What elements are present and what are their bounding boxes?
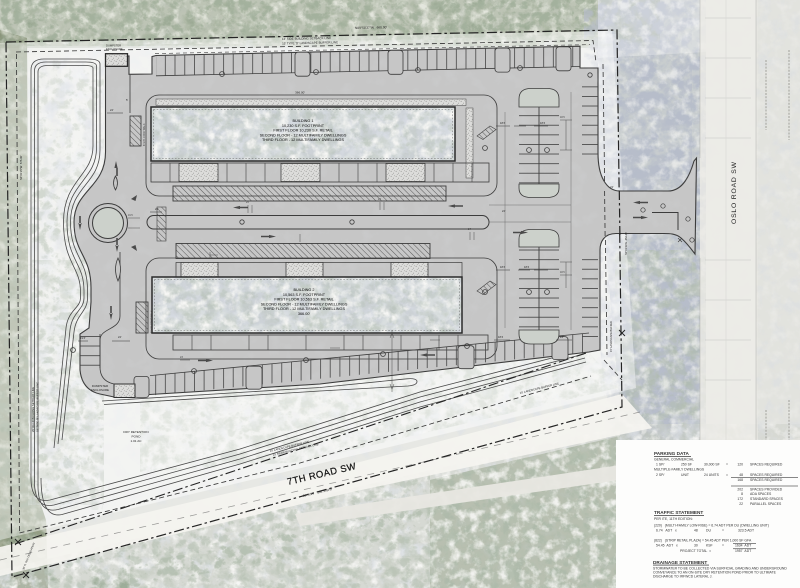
svg-text:(822) (STRIP RETAIL PLAZA) =: (822) (STRIP RETAIL PLAZA) = 54.45 ADT P… bbox=[654, 538, 752, 542]
svg-text:THIRD FLOOR - 12 MULTIFAMILY D: THIRD FLOOR - 12 MULTIFAMILY DWELLINGS bbox=[262, 138, 345, 142]
svg-text:FIRST FLOOR 10,563 S.F. RETAIL: FIRST FLOOR 10,563 S.F. RETAIL bbox=[274, 298, 333, 302]
svg-text:48: 48 bbox=[694, 528, 698, 532]
svg-text:6.74 ADT x: 6.74 ADT x bbox=[656, 528, 677, 532]
svg-text:STANDARD SPACES: STANDARD SPACES bbox=[750, 497, 784, 501]
svg-text:PROJECT TOTAL =: PROJECT TOTAL = bbox=[680, 549, 711, 553]
svg-text:18.5: 18.5 bbox=[524, 265, 530, 269]
svg-text:172: 172 bbox=[737, 497, 743, 501]
svg-text:24': 24' bbox=[560, 335, 564, 339]
svg-text:SECOND FLOOR - 12 MULTIFAMILY: SECOND FLOOR - 12 MULTIFAMILY DWELLINGS bbox=[260, 133, 347, 137]
svg-text:24': 24' bbox=[468, 228, 472, 231]
svg-text:24': 24' bbox=[502, 209, 506, 213]
svg-text:N89°58'37"W 660.00': N89°58'37"W 660.00' bbox=[355, 25, 387, 30]
svg-text:PARALLEL SPACES: PARALLEL SPACES bbox=[750, 502, 782, 506]
svg-text:8' M.B. CONC WALK: 8' M.B. CONC WALK bbox=[143, 123, 146, 146]
svg-text:25' REAR BUILDING SETBACK LINE: 25' REAR BUILDING SETBACK LINE bbox=[31, 387, 35, 432]
svg-text:ADA SPACES: ADA SPACES bbox=[750, 492, 772, 496]
svg-text:366.00': 366.00' bbox=[295, 91, 305, 95]
svg-text:POND: POND bbox=[132, 435, 142, 439]
svg-text:18.5: 18.5 bbox=[560, 116, 565, 119]
svg-text:SECOND FLOOR - 12 MULTIFAMILY: SECOND FLOOR - 12 MULTIFAMILY DWELLINGS bbox=[261, 302, 348, 306]
svg-text:THIRD FLOOR - 12 MULTIFAMILY D: THIRD FLOOR - 12 MULTIFAMILY DWELLINGS bbox=[263, 307, 346, 311]
svg-text:10,563 S.F. FOOTPRINT: 10,563 S.F. FOOTPRINT bbox=[283, 293, 326, 297]
svg-text:SPACES PROVIDED: SPACES PROVIDED bbox=[750, 487, 783, 491]
svg-text:15' TYPE 'B' LANDSCAPE BUFFER: 15' TYPE 'B' LANDSCAPE BUFFER LINE bbox=[36, 382, 40, 432]
svg-text:=: = bbox=[722, 528, 724, 532]
svg-text:19.5': 19.5' bbox=[80, 336, 86, 340]
svg-text:24': 24' bbox=[110, 108, 114, 112]
svg-text:16.5: 16.5 bbox=[128, 214, 133, 217]
svg-text:TRAFFIC STATEMENT: TRAFFIC STATEMENT bbox=[654, 510, 703, 515]
svg-text:=: = bbox=[726, 473, 728, 477]
svg-text:MULTIPLE-FAMILY DWELLINGS: MULTIPLE-FAMILY DWELLINGS bbox=[654, 468, 705, 472]
svg-text:DISCHARGE TO IRFWCD LATERAL J.: DISCHARGE TO IRFWCD LATERAL J. bbox=[653, 574, 712, 578]
svg-text:18.5: 18.5 bbox=[540, 121, 546, 125]
svg-text:1.01 AC: 1.01 AC bbox=[130, 439, 142, 443]
svg-text:=: = bbox=[726, 462, 728, 466]
svg-text:KSF: KSF bbox=[706, 544, 713, 548]
svg-text:S0°01'23"E 452.45': S0°01'23"E 452.45' bbox=[624, 231, 628, 255]
svg-text:22: 22 bbox=[739, 502, 743, 506]
svg-text:24': 24' bbox=[180, 356, 184, 359]
svg-text:OSLO ROAD SW: OSLO ROAD SW bbox=[731, 161, 738, 224]
svg-text:323.5 ADT: 323.5 ADT bbox=[738, 528, 754, 532]
svg-text:(220) (MULTI-FAMILY LOW-RISE: (220) (MULTI-FAMILY LOW-RISE) = 6.74 ADT… bbox=[654, 523, 769, 527]
svg-text:1957 ADT: 1957 ADT bbox=[735, 549, 751, 553]
svg-text:8' M.B. CONC WALK: 8' M.B. CONC WALK bbox=[151, 310, 154, 333]
svg-text:8: 8 bbox=[741, 492, 743, 496]
svg-text:PARKING DATA: PARKING DATA bbox=[654, 451, 690, 456]
svg-text:24': 24' bbox=[378, 198, 382, 201]
svg-text:250 SF: 250 SF bbox=[681, 462, 692, 466]
svg-text:24 UNITS: 24 UNITS bbox=[704, 473, 720, 477]
svg-text:24': 24' bbox=[155, 207, 159, 211]
svg-text:DRAINAGE STATEMENT: DRAINAGE STATEMENT bbox=[653, 560, 707, 565]
svg-text:366.00': 366.00' bbox=[298, 312, 311, 316]
svg-text:120: 120 bbox=[737, 462, 743, 466]
svg-text:UNIT: UNIT bbox=[681, 473, 689, 477]
svg-text:10,230 S.F. FOOTPRINT: 10,230 S.F. FOOTPRINT bbox=[282, 124, 325, 128]
svg-text:SPACES REQUIRED: SPACES REQUIRED bbox=[750, 478, 783, 482]
svg-text:=: = bbox=[722, 544, 724, 548]
svg-text:BUILDING 2: BUILDING 2 bbox=[293, 288, 314, 292]
svg-text:2 SP/: 2 SP/ bbox=[656, 473, 664, 477]
svg-text:48: 48 bbox=[739, 473, 743, 477]
svg-text:24': 24' bbox=[246, 201, 250, 204]
svg-text:15' LANDSCAPE BUFFER: 15' LANDSCAPE BUFFER bbox=[609, 321, 613, 352]
svg-text:FIRST FLOOR 10,230 S.F. RETAIL: FIRST FLOOR 10,230 S.F. RETAIL bbox=[273, 129, 332, 133]
svg-text:ENCLOSURE: ENCLOSURE bbox=[91, 388, 109, 392]
svg-text:1634 ADT: 1634 ADT bbox=[735, 544, 751, 548]
svg-text:24': 24' bbox=[118, 335, 122, 339]
svg-text:ENCLOSURE: ENCLOSURE bbox=[106, 47, 123, 51]
svg-text:DU: DU bbox=[706, 528, 711, 532]
svg-text:DUMPSTER: DUMPSTER bbox=[106, 43, 121, 47]
svg-text:18.5: 18.5 bbox=[560, 271, 565, 274]
svg-text:202: 202 bbox=[737, 487, 743, 491]
svg-text:54.45 ADT x: 54.45 ADT x bbox=[656, 544, 678, 548]
svg-text:24': 24' bbox=[610, 185, 614, 189]
svg-text:DRY RETENTION: DRY RETENTION bbox=[123, 430, 148, 434]
svg-text:GENERAL COMMERCIAL: GENERAL COMMERCIAL bbox=[654, 458, 694, 462]
svg-text:SPACES REQUIRED: SPACES REQUIRED bbox=[750, 462, 783, 466]
svg-text:BUILDING 1: BUILDING 1 bbox=[292, 119, 313, 123]
svg-text:30: 30 bbox=[694, 544, 698, 548]
svg-text:168: 168 bbox=[737, 478, 743, 482]
svg-text:PER ITE, 11TH EDITION:: PER ITE, 11TH EDITION: bbox=[654, 517, 693, 521]
svg-text:18.5: 18.5 bbox=[498, 335, 504, 339]
svg-text:S0°01'25"W 575.00': S0°01'25"W 575.00' bbox=[19, 155, 23, 180]
svg-text:1 SP/: 1 SP/ bbox=[656, 462, 664, 466]
svg-text:SPACES REQUIRED: SPACES REQUIRED bbox=[750, 473, 783, 477]
svg-text:30,000 SF: 30,000 SF bbox=[704, 462, 720, 466]
